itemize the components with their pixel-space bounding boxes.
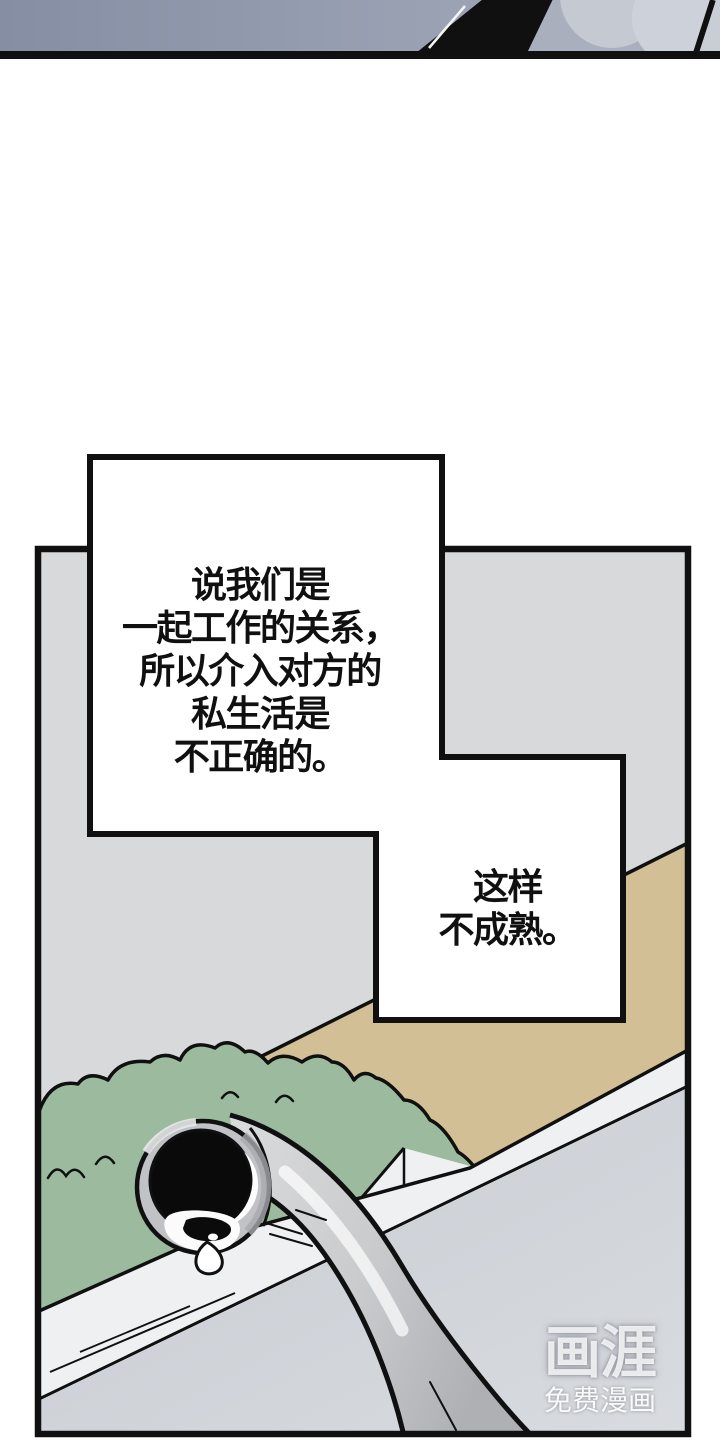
- dialogue-line: 说我们是: [191, 563, 329, 606]
- dialogue-line: 这样: [473, 865, 542, 908]
- speech-bubble-1: 说我们是 一起工作的关系， 所以介入对方的 私生活是 不正确的。: [87, 460, 433, 831]
- dialogue-line: 不成熟。: [438, 908, 576, 951]
- dialogue-line: 所以介入对方的: [139, 649, 381, 692]
- dialogue-line: 不正确的。: [174, 735, 347, 778]
- dialogue-line: 一起工作的关系，: [122, 606, 398, 649]
- dialogue-line: 私生活是: [191, 692, 329, 735]
- speech-bubble-2: 这样 不成熟。: [387, 760, 628, 1017]
- comic-page: 说我们是 一起工作的关系， 所以介入对方的 私生活是 不正确的。 这样 不成熟。…: [0, 0, 720, 1440]
